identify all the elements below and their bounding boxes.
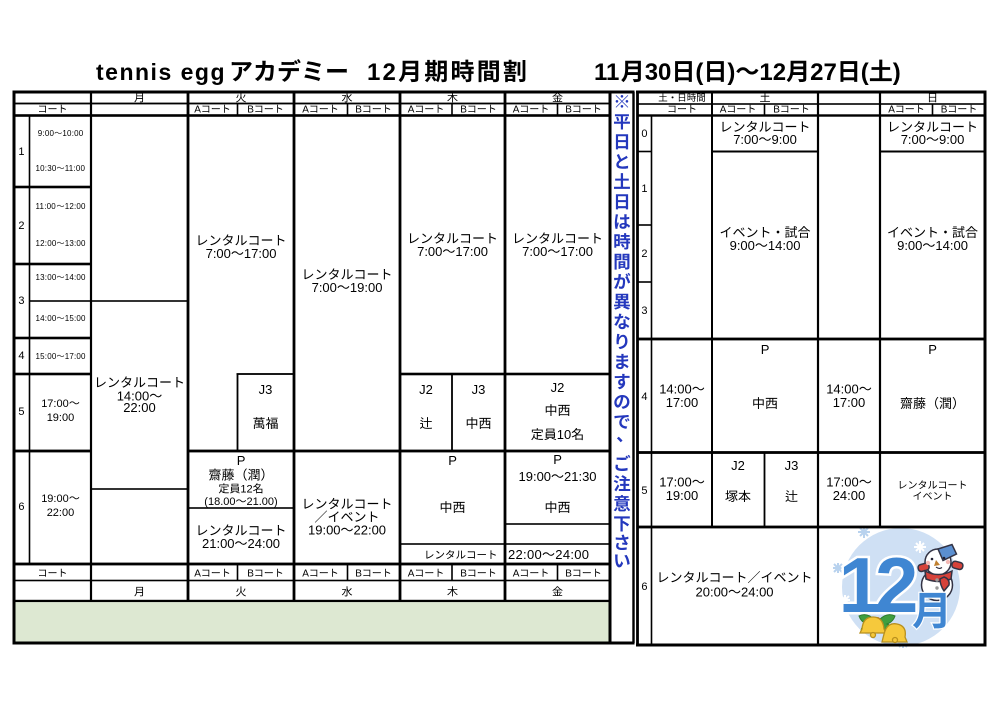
- svg-text:12:00: 12:00: [65, 202, 86, 211]
- svg-text:(18.00: (18.00: [204, 496, 235, 508]
- svg-text:1: 1: [641, 183, 647, 195]
- svg-text:3: 3: [641, 305, 647, 317]
- svg-text:P: P: [761, 342, 770, 357]
- svg-text:10:00: 10:00: [62, 129, 83, 138]
- svg-text:A: A: [408, 105, 415, 116]
- svg-text:24:00: 24:00: [555, 547, 589, 562]
- svg-text:J2: J2: [731, 458, 745, 473]
- svg-text:15:00: 15:00: [65, 314, 86, 323]
- svg-text:17:00: 17:00: [455, 244, 488, 259]
- svg-text:14:00: 14:00: [768, 238, 801, 253]
- svg-text:2: 2: [18, 220, 24, 232]
- svg-text:A: A: [408, 569, 415, 580]
- svg-text:3: 3: [18, 295, 24, 307]
- svg-text:J3: J3: [472, 382, 486, 397]
- svg-text:5: 5: [641, 485, 647, 497]
- svg-text:10:30: 10:30: [36, 164, 57, 173]
- svg-text:P: P: [448, 453, 457, 468]
- svg-text:11: 11: [594, 59, 619, 86]
- svg-text:17:00: 17:00: [244, 246, 277, 261]
- svg-text:B: B: [355, 105, 362, 116]
- svg-text:9:00: 9:00: [772, 132, 797, 147]
- svg-text:19:00: 19:00: [47, 412, 75, 424]
- svg-text:7:00: 7:00: [522, 244, 547, 259]
- svg-text:17:00: 17:00: [666, 395, 699, 410]
- svg-text:19:00: 19:00: [350, 280, 383, 295]
- svg-text:A: A: [302, 105, 309, 116]
- svg-text:A: A: [888, 105, 895, 116]
- svg-text:22:00: 22:00: [354, 523, 387, 538]
- svg-text:12:00: 12:00: [36, 239, 57, 248]
- svg-text:14:00: 14:00: [65, 273, 86, 282]
- svg-text:22:00: 22:00: [47, 507, 75, 519]
- svg-text:9:00: 9:00: [730, 238, 755, 253]
- svg-text:27: 27: [810, 59, 837, 86]
- svg-text:A: A: [194, 105, 201, 116]
- svg-text:7:00: 7:00: [901, 132, 926, 147]
- svg-text:6: 6: [18, 501, 24, 513]
- svg-text:J2: J2: [551, 380, 565, 395]
- svg-text:10: 10: [557, 427, 571, 442]
- svg-text:0: 0: [641, 128, 647, 140]
- svg-text:7:00: 7:00: [417, 244, 442, 259]
- svg-text:17:00: 17:00: [833, 395, 866, 410]
- svg-text:30: 30: [645, 59, 672, 86]
- svg-text:15:00: 15:00: [36, 352, 57, 361]
- svg-text:22:00: 22:00: [123, 400, 156, 415]
- svg-text:21:00: 21:00: [202, 536, 235, 551]
- svg-text:P: P: [237, 453, 246, 468]
- svg-text:A: A: [302, 569, 309, 580]
- svg-text:9:00: 9:00: [939, 132, 964, 147]
- svg-text:19:00: 19:00: [308, 523, 341, 538]
- svg-text:J3: J3: [785, 458, 799, 473]
- svg-text:A: A: [194, 569, 201, 580]
- svg-text:11:00: 11:00: [65, 164, 86, 173]
- svg-text:): ): [727, 59, 735, 86]
- svg-text:12: 12: [759, 59, 786, 86]
- svg-text:20:00: 20:00: [696, 585, 729, 600]
- svg-text:B: B: [355, 569, 362, 580]
- svg-text:B: B: [941, 105, 948, 116]
- svg-text:7:00: 7:00: [733, 132, 758, 147]
- svg-text:21:30: 21:30: [564, 469, 597, 484]
- svg-text:B: B: [460, 105, 467, 116]
- svg-text:22:00: 22:00: [508, 547, 542, 562]
- svg-text:24:00: 24:00: [833, 488, 866, 503]
- svg-text:19:00: 19:00: [41, 493, 69, 505]
- svg-text:17:00: 17:00: [65, 352, 86, 361]
- svg-text:B: B: [247, 569, 254, 580]
- svg-text:4: 4: [641, 391, 647, 403]
- svg-text:J3: J3: [259, 382, 273, 397]
- svg-text:1: 1: [18, 146, 24, 158]
- svg-text:14:00: 14:00: [36, 314, 57, 323]
- svg-text:(: (: [861, 59, 869, 86]
- svg-text:6: 6: [641, 581, 647, 593]
- svg-text:5: 5: [18, 406, 24, 418]
- svg-text:B: B: [247, 105, 254, 116]
- svg-text:P: P: [928, 342, 937, 357]
- svg-text:B: B: [460, 569, 467, 580]
- svg-text:19:00: 19:00: [666, 488, 699, 503]
- svg-text:A: A: [720, 105, 727, 116]
- svg-text:(: (: [695, 59, 703, 86]
- svg-text:17:00: 17:00: [41, 398, 69, 410]
- svg-text:17:00: 17:00: [560, 244, 593, 259]
- svg-text:2: 2: [641, 248, 647, 260]
- svg-text:14:00: 14:00: [935, 238, 968, 253]
- svg-text:B: B: [565, 569, 572, 580]
- svg-text:B: B: [773, 105, 780, 116]
- svg-text:tennis egg: tennis egg: [96, 59, 226, 85]
- svg-text:4: 4: [18, 350, 24, 362]
- svg-text:12: 12: [367, 59, 398, 86]
- svg-text:B: B: [565, 105, 572, 116]
- svg-text:24:00: 24:00: [741, 585, 774, 600]
- svg-text:13:00: 13:00: [36, 273, 57, 282]
- svg-text:J2: J2: [419, 382, 433, 397]
- svg-text:13:00: 13:00: [65, 239, 86, 248]
- svg-text:19:00: 19:00: [519, 469, 552, 484]
- svg-text:): ): [893, 59, 901, 86]
- svg-text:9:00: 9:00: [897, 238, 922, 253]
- svg-text:A: A: [513, 105, 520, 116]
- svg-text:A: A: [513, 569, 520, 580]
- svg-text:21.00): 21.00): [247, 496, 278, 508]
- svg-text:12: 12: [240, 484, 252, 496]
- svg-text:P: P: [553, 452, 562, 467]
- svg-text:9:00: 9:00: [38, 129, 55, 138]
- svg-text:12: 12: [839, 541, 916, 629]
- svg-text:11:00: 11:00: [36, 202, 57, 211]
- svg-text:7:00: 7:00: [206, 246, 231, 261]
- svg-text:24:00: 24:00: [248, 536, 281, 551]
- svg-text:7:00: 7:00: [312, 280, 337, 295]
